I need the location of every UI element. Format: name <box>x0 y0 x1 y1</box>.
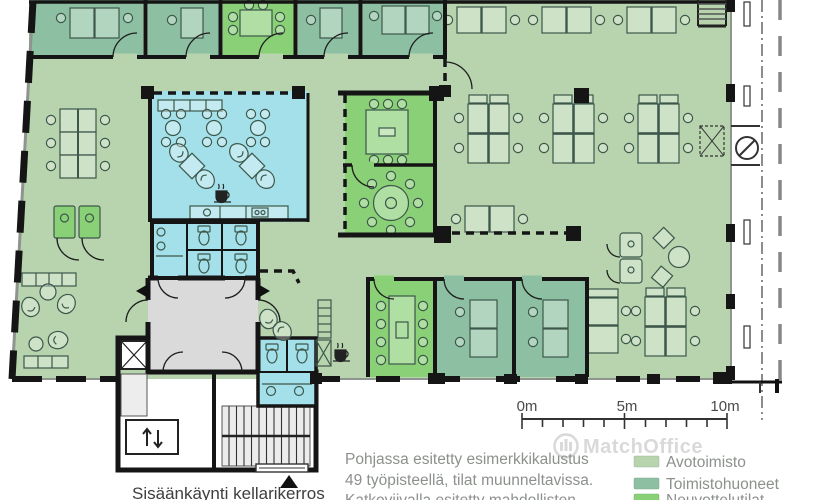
legend-item-avotoimisto: Avotoimisto <box>634 454 746 471</box>
caption-line-2: 49 työpisteellä, tilat muunneltavissa. <box>345 472 593 489</box>
legend-swatch <box>634 478 659 489</box>
no-entry-icon <box>736 137 758 159</box>
floorplan-image: 0m 5m 10m MatchOffice Pohjassa esitetty … <box>0 0 825 500</box>
entrance-label: Sisäänkäynti kellarikerros <box>132 484 325 500</box>
legend-swatch <box>634 456 659 467</box>
legend: Avotoimisto Toimistohuoneet Neuvotteluti… <box>634 454 780 500</box>
legend-item-toimistohuoneet: Toimistohuoneet <box>634 476 780 493</box>
legend-label: Neuvottelutilat <box>666 492 765 500</box>
kitchen-counter <box>190 206 288 219</box>
legend-item-neuvottelutilat: Neuvottelutilat <box>634 492 765 500</box>
stairs <box>222 406 310 466</box>
scale-label-5m: 5m <box>617 398 638 415</box>
scale-label-0m: 0m <box>517 398 538 415</box>
wc-cluster <box>258 338 316 406</box>
legend-label: Avotoimisto <box>666 454 746 471</box>
elevator <box>126 420 178 454</box>
caption-line-1: Pohjassa esitetty esimerkkikalustus <box>345 451 589 468</box>
legend-label: Toimistohuoneet <box>666 476 780 493</box>
scale-bar: 0m 5m 10m <box>517 398 740 429</box>
legend-swatch <box>634 494 659 500</box>
caption: Pohjassa esitetty esimerkkikalustus 49 t… <box>345 451 593 500</box>
caption-line-3: Katkoviivalla esitetty mahdollisten <box>345 492 576 500</box>
floorplan-svg: 0m 5m 10m MatchOffice Pohjassa esitetty … <box>0 0 825 500</box>
scale-label-10m: 10m <box>710 398 739 415</box>
corridor-doors <box>744 2 750 348</box>
